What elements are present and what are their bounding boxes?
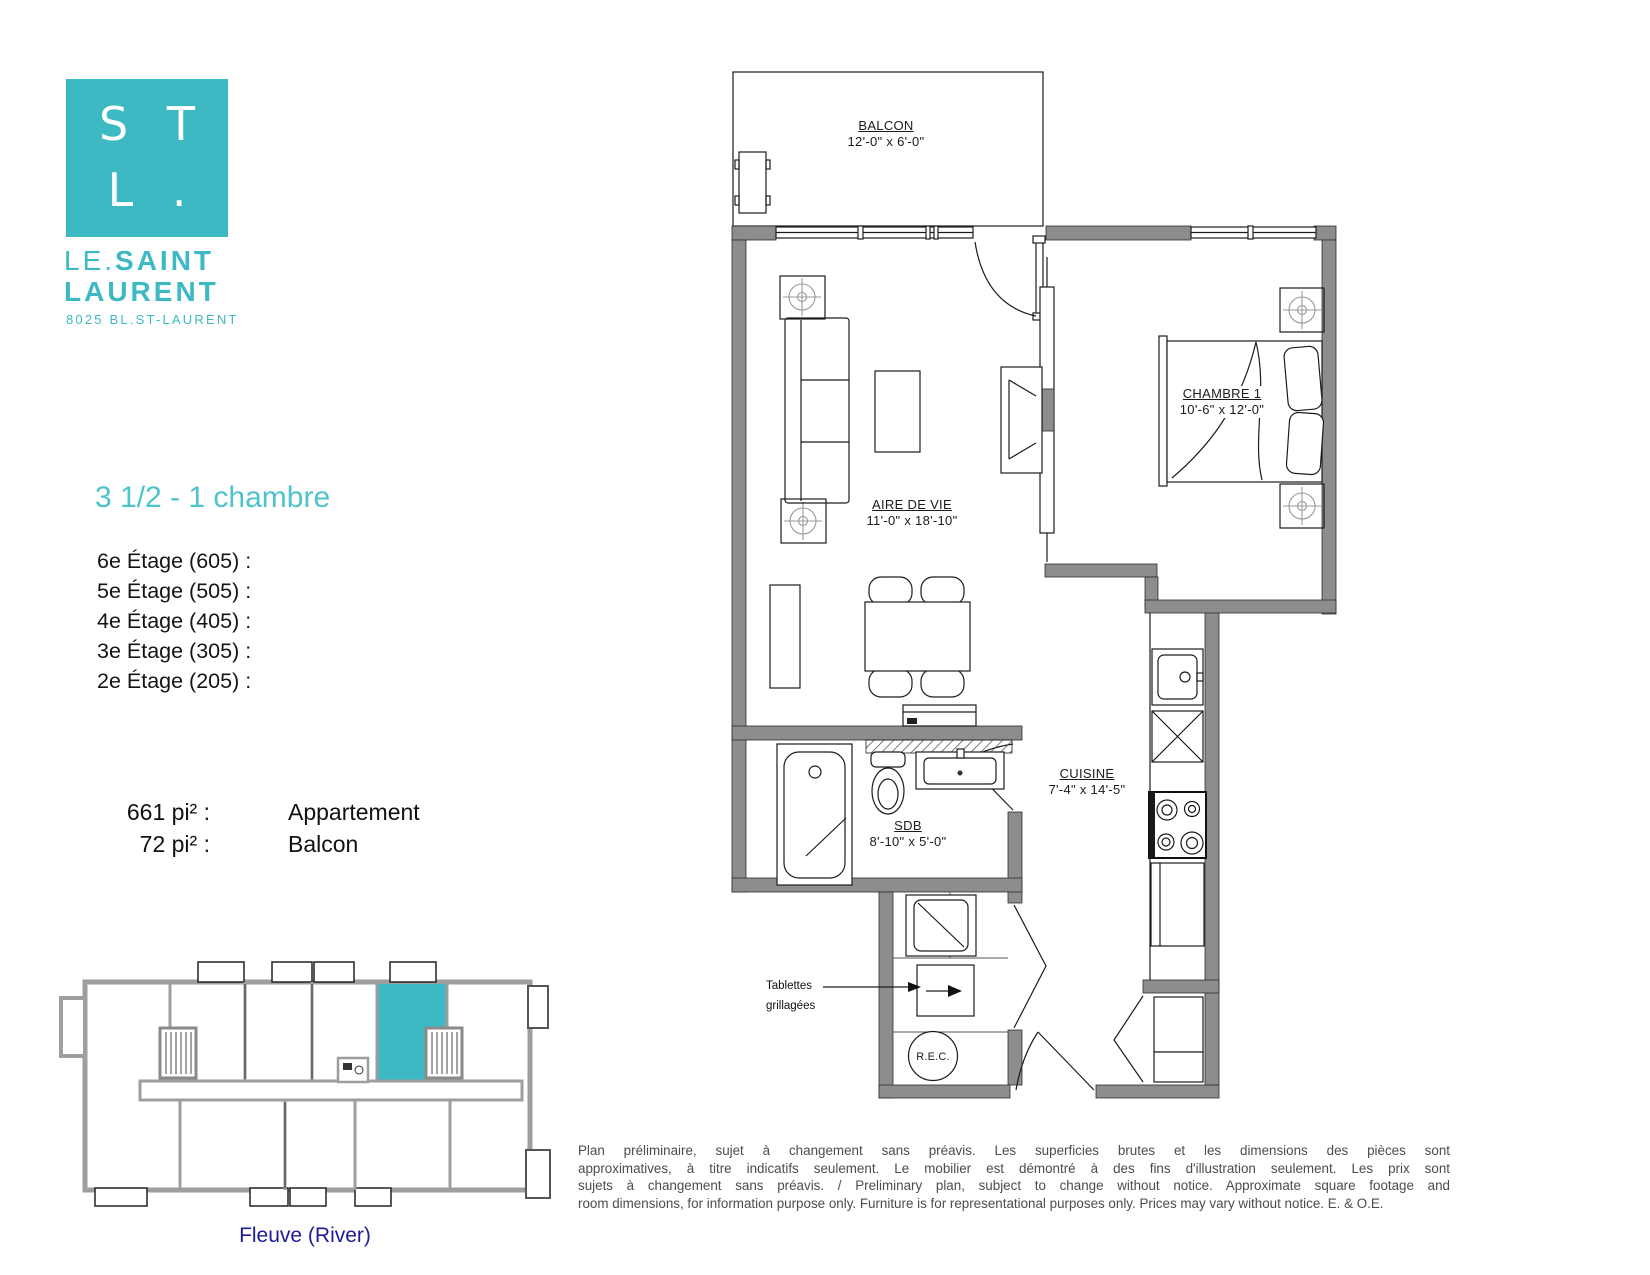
area-row-apartment: 661 pi² : Appartement [92, 799, 612, 826]
room-name: SDB [870, 818, 947, 834]
room-dims: 7'-4" x 14'-5" [1049, 782, 1126, 798]
floor-item: 5e Étage (505) : [97, 576, 251, 606]
river-label: Fleuve (River) [170, 1224, 440, 1248]
shelves-line1: Tablettes [766, 976, 815, 996]
room-label-balcon: BALCON 12'-0" x 6'-0" [845, 118, 928, 150]
apartment-area-value: 661 pi² : [92, 799, 210, 826]
room-dims: 10'-6" x 12'-0" [1180, 402, 1264, 418]
disclaimer-line: Plan préliminaire, sujet à changement sa… [578, 1142, 1450, 1160]
floor-list: 6e Étage (605) : 5e Étage (505) : 4e Éta… [97, 546, 251, 696]
disclaimer: Plan préliminaire, sujet à changement sa… [578, 1142, 1450, 1212]
tv-partition [1001, 257, 1054, 562]
room-label-cuisine: CUISINE 7'-4" x 14'-5" [1046, 766, 1129, 798]
room-dims: 8'-10" x 5'-0" [870, 834, 947, 850]
balcony-area-label: Balcon [288, 831, 358, 858]
floor-item: 3e Étage (305) : [97, 636, 251, 666]
logo-line-2: L . [66, 157, 228, 223]
balcony-area-value: 72 pi² : [92, 831, 210, 858]
apartment-floor-plan [715, 60, 1345, 1110]
floor-item: 4e Étage (405) : [97, 606, 251, 636]
kitchen-fixtures [1149, 613, 1206, 1082]
brand-le: LE. [64, 245, 115, 276]
building-corridor [140, 1081, 522, 1100]
floor-item: 6e Étage (605) : [97, 546, 251, 576]
brand-saint: SAINT [115, 245, 214, 276]
brand-name: LE.SAINT LAURENT [64, 245, 384, 307]
area-row-balcony: 72 pi² : Balcon [92, 831, 612, 858]
stl-logo: S T L . [66, 79, 228, 237]
room-label-chambre1: CHAMBRE 1 10'-6" x 12'-0" [1177, 386, 1267, 418]
room-label-sdb: SDB 8'-10" x 5'-0" [867, 818, 950, 850]
room-label-aire-de-vie: AIRE DE VIE 11'-0" x 18'-10" [863, 497, 960, 529]
shelves-line2: grillagées [766, 996, 815, 1016]
building-overview-plan [55, 948, 560, 1220]
room-name: CHAMBRE 1 [1180, 386, 1264, 402]
logo-line-1: S T [66, 91, 228, 157]
room-name: AIRE DE VIE [866, 497, 957, 513]
brand-name-line2: LAURENT [64, 276, 384, 307]
water-heater-label: R.E.C. [913, 1049, 953, 1065]
room-dims: 11'-0" x 18'-10" [866, 513, 957, 529]
brand-address: 8025 BL.ST-LAURENT [66, 312, 239, 327]
disclaimer-line: room dimensions, for information purpose… [578, 1195, 1450, 1213]
stair-core-left [160, 1028, 196, 1078]
stair-core-right [426, 1028, 462, 1078]
unit-title: 3 1/2 - 1 chambre [95, 481, 330, 515]
room-name: CUISINE [1049, 766, 1126, 782]
bathroom-fixtures [777, 740, 1012, 885]
brand-name-line1: LE.SAINT [64, 245, 384, 276]
room-name: BALCON [848, 118, 925, 134]
floor-item: 2e Étage (205) : [97, 666, 251, 696]
shelves-annotation: Tablettes grillagées [766, 976, 815, 1016]
disclaimer-line: approximatives, à titre indicatifs seule… [578, 1160, 1450, 1178]
apartment-area-label: Appartement [288, 799, 420, 826]
disclaimer-line: sujets à changement sans préavis. / Prel… [578, 1177, 1450, 1195]
room-dims: 12'-0" x 6'-0" [848, 134, 925, 150]
brochure-page: S T L . LE.SAINT LAURENT 8025 BL.ST-LAUR… [0, 0, 1650, 1275]
core-fixtures [338, 1058, 368, 1082]
